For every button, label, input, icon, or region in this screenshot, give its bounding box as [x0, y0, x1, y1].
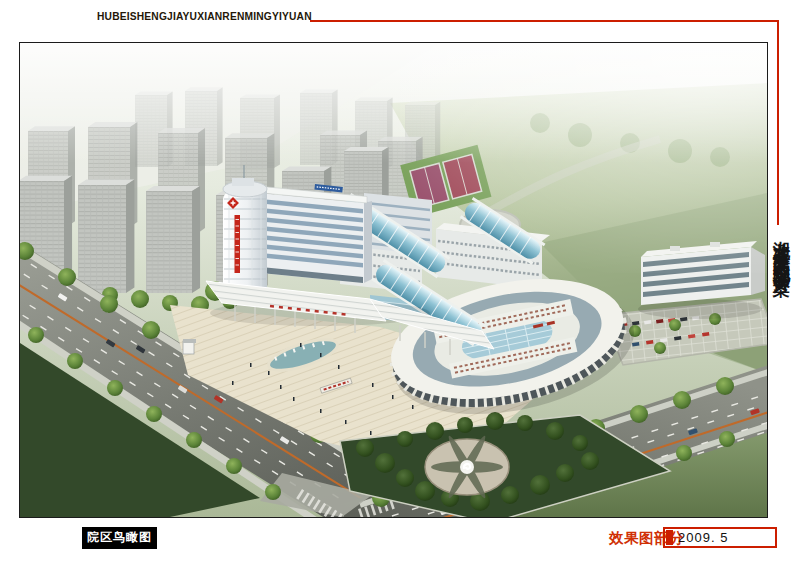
tower-name-strip [235, 215, 241, 273]
date-text: 2009. 5 [678, 530, 728, 545]
rendering-frame [19, 42, 768, 518]
caption-badge: 院区鸟瞰图 [82, 527, 157, 549]
right-border-line [777, 20, 779, 225]
inpatient-slab [257, 184, 372, 283]
presentation-board: HUBEISHENGJIAYUXIANRENMINGYIYUAN [0, 0, 800, 565]
date-box: 2009. 5 [663, 527, 777, 548]
aerial-rendering [20, 43, 767, 517]
mist-right [400, 43, 767, 273]
title-underline [310, 20, 779, 22]
latin-title: HUBEISHENGJIAYUXIANRENMINGYIYUAN [97, 10, 312, 22]
date-box-red-bar [666, 530, 673, 545]
side-title-vertical: 湖北省嘉鱼县人民医院规划设计方案 [765, 227, 797, 523]
